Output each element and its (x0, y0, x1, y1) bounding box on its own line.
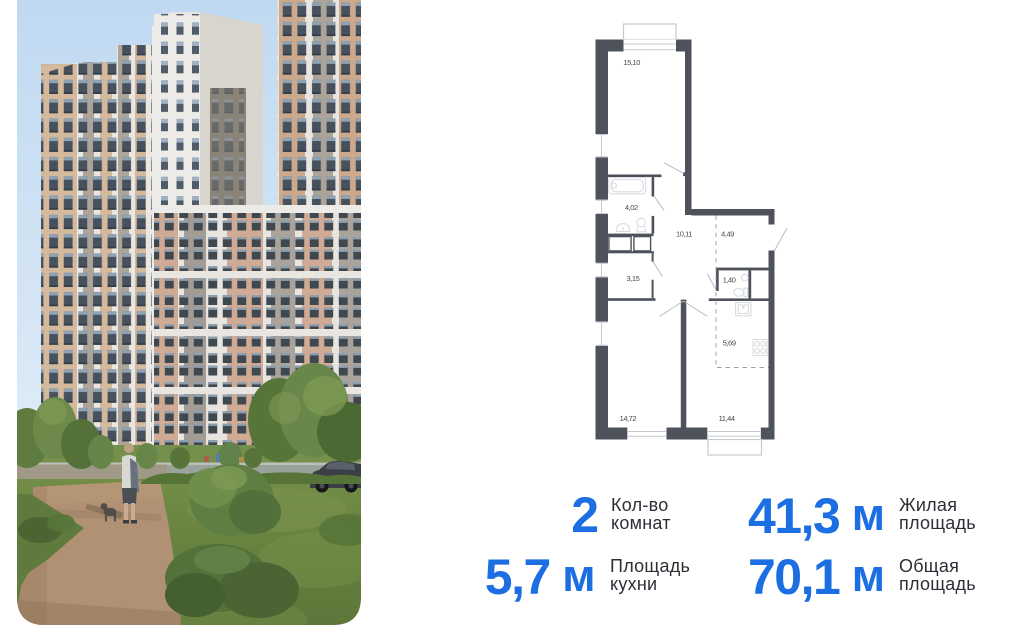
svg-text:10,11: 10,11 (676, 229, 692, 238)
svg-text:1,40: 1,40 (723, 275, 736, 284)
svg-text:4,02: 4,02 (625, 203, 638, 212)
svg-text:11,44: 11,44 (719, 414, 735, 423)
svg-text:5,69: 5,69 (723, 339, 736, 348)
svg-text:14,72: 14,72 (620, 414, 637, 423)
svg-text:4,49: 4,49 (721, 229, 734, 238)
svg-text:15,10: 15,10 (623, 58, 640, 67)
svg-text:3,15: 3,15 (627, 274, 640, 283)
